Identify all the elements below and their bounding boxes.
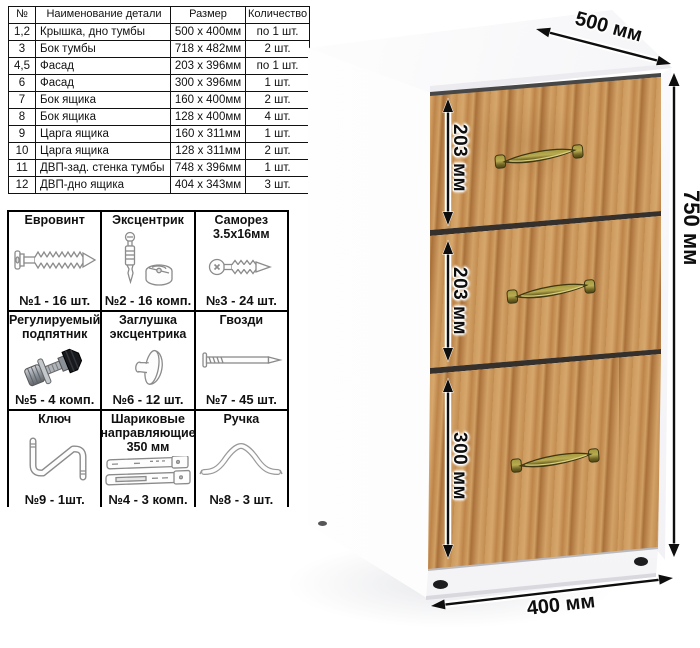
col-header-size: Размер — [171, 7, 246, 24]
parts-table-cell: по 1 шт. — [246, 58, 310, 75]
nail-icon — [199, 328, 283, 392]
hardware-qty: №2 - 16 комп. — [105, 293, 192, 308]
hardware-qty: №1 - 16 шт. — [19, 293, 90, 308]
parts-table-cell: 404 x 343мм — [171, 177, 246, 194]
ball-bearing-slides-icon — [104, 454, 192, 492]
parts-table-cell: 748 x 396мм — [171, 160, 246, 177]
confirmat-screw-icon — [13, 228, 97, 293]
hardware-title: Регулируемый подпятник — [9, 314, 100, 342]
parts-table-cell: 3 — [9, 41, 36, 58]
col-header-quantity: Количество — [246, 7, 310, 24]
col-header-part-name: Наименование детали — [36, 7, 171, 24]
dimension-label-drawer1: 203 мм — [448, 124, 470, 192]
hardware-qty: №3 - 24 шт. — [206, 293, 277, 308]
dimension-label-top-width: 500 мм — [555, 3, 662, 52]
parts-table-cell: 1 шт. — [246, 126, 310, 143]
parts-table-cell: 2 шт. — [246, 143, 310, 160]
hardware-title: Саморез 3.5х16мм — [198, 214, 285, 242]
parts-table-row: 7Бок ящика160 x 400мм2 шт. — [9, 92, 310, 109]
parts-table-cell: 2 шт. — [246, 92, 310, 109]
parts-table-row: 3Бок тумбы718 x 482мм2 шт. — [9, 41, 310, 58]
parts-table-row: 11ДВП-зад. стенка тумбы748 x 396мм1 шт. — [9, 160, 310, 177]
parts-table-cell: 9 — [9, 126, 36, 143]
cabinet-foot-front-left — [433, 580, 448, 589]
parts-table-cell: ДВП-зад. стенка тумбы — [36, 160, 171, 177]
parts-table-cell: Фасад — [36, 75, 171, 92]
hardware-qty: №6 - 12 шт. — [112, 392, 183, 407]
parts-table-cell: 160 x 400мм — [171, 92, 246, 109]
parts-table-cell: 10 — [9, 143, 36, 160]
parts-table-cell: 4,5 — [9, 58, 36, 75]
hardware-cell-ball-slides: Шариковые направляющие 350 мм — [102, 411, 193, 509]
parts-table-cell: 6 — [9, 75, 36, 92]
parts-table-row: 4,5Фасад203 x 396ммпо 1 шт. — [9, 58, 310, 75]
hardware-cell-eccentric: Эксцентрик №2 - 16 комп. — [102, 212, 193, 310]
parts-table-cell: 300 x 396мм — [171, 75, 246, 92]
parts-table-cell: Фасад — [36, 58, 171, 75]
parts-table-cell: 2 шт. — [246, 41, 310, 58]
parts-table-cell: 8 — [9, 109, 36, 126]
hardware-qty: №7 - 45 шт. — [206, 392, 277, 407]
parts-table-cell: Крышка, дно тумбы — [36, 24, 171, 41]
parts-table-cell: Царга ящика — [36, 126, 171, 143]
hardware-title: Ключ — [38, 413, 71, 427]
assembly-instruction-sheet: № Наименование детали Размер Количество … — [0, 0, 700, 648]
hardware-title: Евровинт — [24, 214, 84, 228]
drawer-handle-2 — [504, 274, 598, 307]
hardware-qty: №9 - 1шт. — [25, 492, 85, 507]
parts-table-cell: 1 шт. — [246, 75, 310, 92]
hardware-title: Гвозди — [220, 314, 264, 328]
parts-table-cell: ДВП-дно ящика — [36, 177, 171, 194]
eccentric-cap-icon — [126, 342, 170, 393]
parts-table-cell: 500 x 400мм — [171, 24, 246, 41]
parts-table-cell: Бок ящика — [36, 92, 171, 109]
hardware-cell-self-tapping-screw: Саморез 3.5х16мм №3 - 24 шт. — [196, 212, 287, 310]
parts-table-cell: 12 — [9, 177, 36, 194]
hardware-qty: №5 - 4 комп. — [15, 392, 94, 407]
hardware-cell-adjustable-foot: Регулируемый подпятник — [9, 312, 100, 409]
parts-table-cell: Бок тумбы — [36, 41, 171, 58]
parts-table-cell: 11 — [9, 160, 36, 177]
parts-table-cell: Бок ящика — [36, 109, 171, 126]
hardware-cell-key: Ключ №9 - 1шт. — [9, 411, 100, 509]
parts-table-cell: 1,2 — [9, 24, 36, 41]
cabinet-foot-front-right — [634, 557, 648, 566]
parts-table-header-row: № Наименование детали Размер Количество — [9, 7, 310, 24]
adjustable-foot-icon — [22, 342, 88, 393]
parts-table-cell: по 1 шт. — [246, 24, 310, 41]
hardware-title: Шариковые направляющие 350 мм — [102, 413, 193, 454]
hardware-grid: Евровинт №1 - 16 шт. Эксцентрик — [7, 210, 289, 507]
hardware-qty: №4 - 3 комп. — [108, 492, 187, 507]
col-header-number: № — [9, 7, 36, 24]
parts-table-cell: 203 x 396мм — [171, 58, 246, 75]
cabinet-floor-shadow — [240, 500, 700, 640]
cabinet-foot-back-left — [318, 521, 327, 526]
hardware-cell-nails: Гвозди №7 - 45 шт. — [196, 312, 287, 409]
hardware-title: Заглушка эксцентрика — [104, 314, 191, 342]
drawer-handle-1 — [492, 139, 586, 172]
dimension-label-drawer2: 203 мм — [448, 267, 470, 335]
hardware-title: Эксцентрик — [112, 214, 184, 228]
parts-table-cell: 128 x 400мм — [171, 109, 246, 126]
parts-table-cell: 4 шт. — [246, 109, 310, 126]
drawer-handle-icon — [197, 427, 285, 492]
hardware-cell-eccentric-cap: Заглушка эксцентрика №6 - 12 шт. — [102, 312, 193, 409]
dimension-label-drawer3: 300 мм — [448, 432, 470, 500]
hex-key-icon — [15, 427, 95, 492]
parts-table-cell: 3 шт. — [246, 177, 310, 194]
parts-table-cell: 160 x 311мм — [171, 126, 246, 143]
parts-table-row: 8Бок ящика128 x 400мм4 шт. — [9, 109, 310, 126]
parts-table-row: 6Фасад300 x 396мм1 шт. — [9, 75, 310, 92]
hardware-title: Ручка — [223, 413, 259, 427]
parts-table-cell: 7 — [9, 92, 36, 109]
parts-table-cell: 718 x 482мм — [171, 41, 246, 58]
dimension-label-height: 750 мм — [678, 190, 700, 265]
parts-table-row: 9Царга ящика160 x 311мм1 шт. — [9, 126, 310, 143]
parts-table: № Наименование детали Размер Количество … — [8, 6, 310, 194]
self-tapping-screw-icon — [208, 242, 274, 294]
parts-table-cell: 1 шт. — [246, 160, 310, 177]
parts-table-cell: Царга ящика — [36, 143, 171, 160]
drawer-handle-3 — [508, 443, 602, 476]
hardware-cell-eurovint: Евровинт №1 - 16 шт. — [9, 212, 100, 310]
hardware-cell-handle: Ручка №8 - 3 шт. — [196, 411, 287, 509]
parts-table-cell: 128 x 311мм — [171, 143, 246, 160]
parts-table-body: 1,2Крышка, дно тумбы500 x 400ммпо 1 шт.3… — [9, 24, 310, 194]
parts-table-row: 12ДВП-дно ящика404 x 343мм3 шт. — [9, 177, 310, 194]
parts-table-row: 10Царга ящика128 x 311мм2 шт. — [9, 143, 310, 160]
parts-table-row: 1,2Крышка, дно тумбы500 x 400ммпо 1 шт. — [9, 24, 310, 41]
eccentric-cam-icon — [116, 228, 180, 293]
